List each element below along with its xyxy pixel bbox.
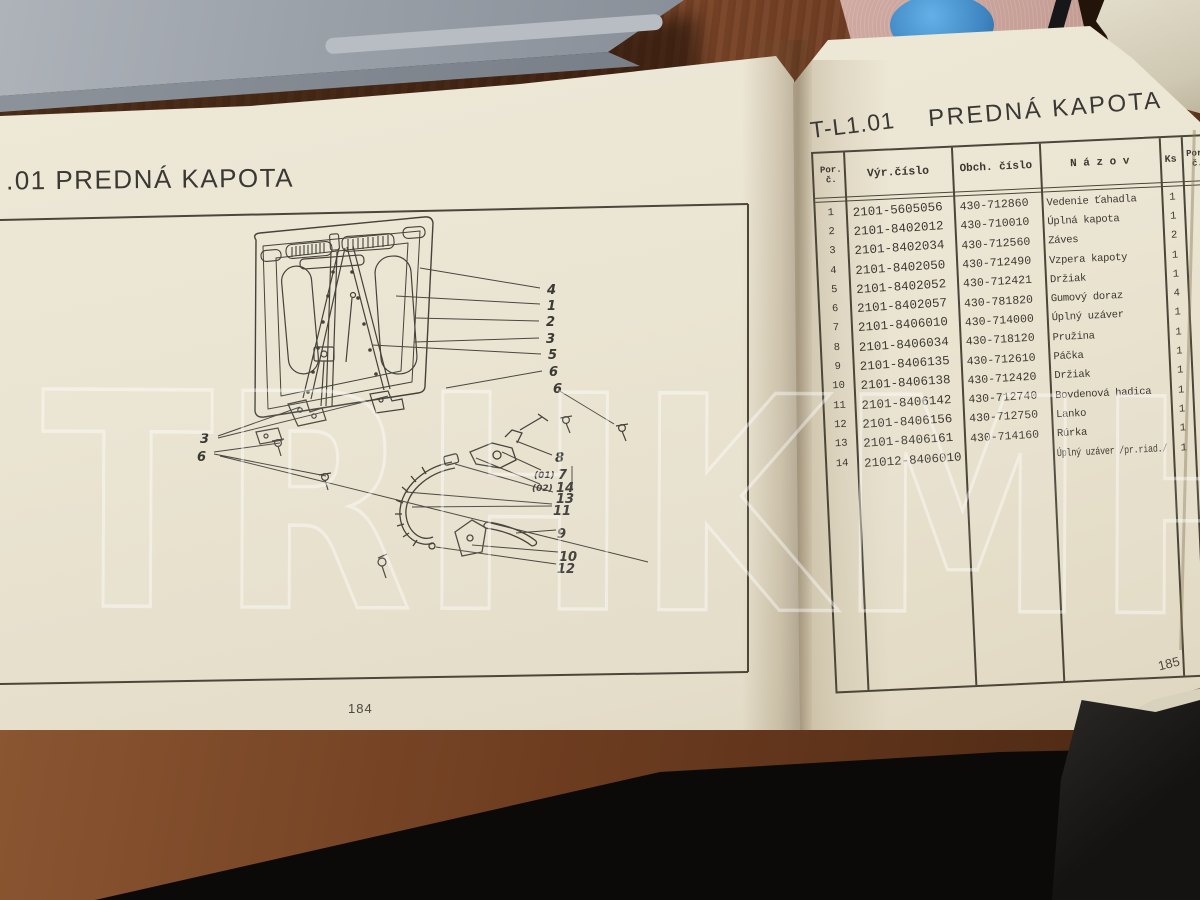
cell-por: 5 — [819, 283, 850, 296]
header-nazov: N á z o v — [1039, 138, 1161, 187]
cell-ks: 1 — [1161, 191, 1184, 204]
leader-lines — [214, 268, 648, 564]
cell-por: 13 — [826, 437, 857, 450]
cell-por: 7 — [821, 322, 852, 335]
diagram-frame — [0, 204, 748, 684]
cell-ks: 1 — [1164, 249, 1187, 262]
callout-2: 2 — [546, 315, 555, 330]
callout-12: 12 — [557, 562, 575, 577]
callout-3: 3 — [546, 332, 555, 347]
cell-ks: 1 — [1165, 268, 1188, 281]
cell-obch: 430-712740 — [962, 389, 1051, 407]
callout-5: 5 — [548, 348, 557, 363]
cell-obch — [965, 453, 1053, 458]
cell-ks: 1 — [1171, 403, 1194, 416]
cell-por: 12 — [825, 418, 856, 431]
cell-obch: 430-712750 — [963, 408, 1052, 426]
cell-obch: 430-712421 — [957, 273, 1046, 291]
cell-por: 2 — [816, 225, 847, 238]
cell-nazov: Úplný uzáver /pr.riad./ — [1053, 443, 1149, 459]
table-body: 12101-5605056430-712860Vedenie ťahadla12… — [815, 186, 1200, 474]
book-gutter-shadow — [742, 40, 812, 760]
cell-nazov: Úplný uzáver — [1047, 307, 1167, 324]
cell-nazov: Úplná kapota — [1042, 211, 1162, 228]
cell-por: 10 — [823, 380, 854, 393]
cell-ks: 1 — [1162, 210, 1185, 223]
cell-nazov: Pružina — [1047, 327, 1167, 344]
callout-6a: 6 — [549, 365, 558, 380]
cell-obch: 430-712610 — [960, 350, 1049, 368]
cell-nazov: Držiak — [1049, 365, 1169, 382]
callout-8: 8 — [555, 451, 564, 466]
cell-nazov: Držiak — [1045, 269, 1165, 286]
cell-nazov: Gumový doraz — [1046, 288, 1166, 305]
cell-nazov: Rúrka — [1052, 423, 1172, 440]
cell-obch: 430-712860 — [953, 196, 1042, 214]
cell-por: 8 — [822, 341, 853, 354]
header-obch: Obch. číslo — [951, 144, 1041, 192]
cell-por: 14 — [827, 457, 858, 470]
cell-nazov: Záves — [1043, 230, 1163, 247]
bowden-cable — [395, 414, 548, 556]
cell-por: 1 — [816, 206, 847, 219]
cell-nazov: Bovdenová hadica — [1050, 385, 1170, 402]
cell-obch: 430-712420 — [961, 370, 1050, 388]
cell-obch: 430-712490 — [956, 254, 1045, 272]
cell-obch: 430-718120 — [959, 331, 1048, 349]
cell-nazov: Vedenie ťahadla — [1041, 192, 1161, 209]
callout-4: 4 — [546, 283, 556, 298]
callout-6b: 6 — [553, 382, 562, 397]
cell-por: 3 — [817, 245, 848, 258]
header-vyr: Výr.číslo — [843, 148, 953, 197]
dark-object — [1052, 700, 1200, 900]
cell-por: 9 — [823, 360, 854, 373]
callout-11: 11 — [553, 504, 571, 519]
cell-nazov: Páčka — [1048, 346, 1168, 363]
cell-obch: 430-714000 — [959, 312, 1048, 330]
cell-obch: 430-781820 — [958, 293, 1047, 311]
callout-1: 1 — [547, 299, 556, 314]
right-page-title: PREDNÁ KAPOTA — [927, 87, 1163, 133]
header-ks: Ks — [1159, 137, 1183, 182]
cell-por: 6 — [820, 303, 851, 316]
cell-ks: 4 — [1166, 287, 1189, 300]
callout-left-3: 3 — [200, 432, 209, 447]
cell-obch: 430-714160 — [964, 427, 1053, 445]
cell-ks: 2 — [1163, 229, 1186, 242]
photo-scene: .01 PREDNÁ KAPOTA — [0, 0, 1200, 900]
hood-outline — [255, 217, 433, 417]
cell-obch: 430-712560 — [955, 235, 1044, 253]
cell-por: 11 — [824, 399, 855, 412]
cell-nazov: Lanko — [1051, 404, 1171, 421]
callout-left-6: 6 — [197, 450, 206, 465]
cell-ks: 1 — [1166, 306, 1189, 319]
cell-por: 4 — [818, 264, 849, 277]
parts-table: Por. č. Výr.číslo Obch. číslo N á z o v … — [811, 134, 1200, 694]
cell-nazov: Vzpera kapoty — [1044, 250, 1164, 267]
callout-9: 9 — [557, 527, 566, 542]
cell-obch: 430-710010 — [954, 215, 1043, 233]
callout-01: (01) — [534, 471, 555, 481]
callout-02: (02) — [532, 484, 553, 494]
cell-ks: 1 — [1172, 422, 1195, 435]
cell-vyr: 21012-8406010 — [857, 450, 966, 471]
header-por2: Por. č. — [1181, 136, 1200, 181]
left-page-number: 184 — [348, 701, 373, 716]
